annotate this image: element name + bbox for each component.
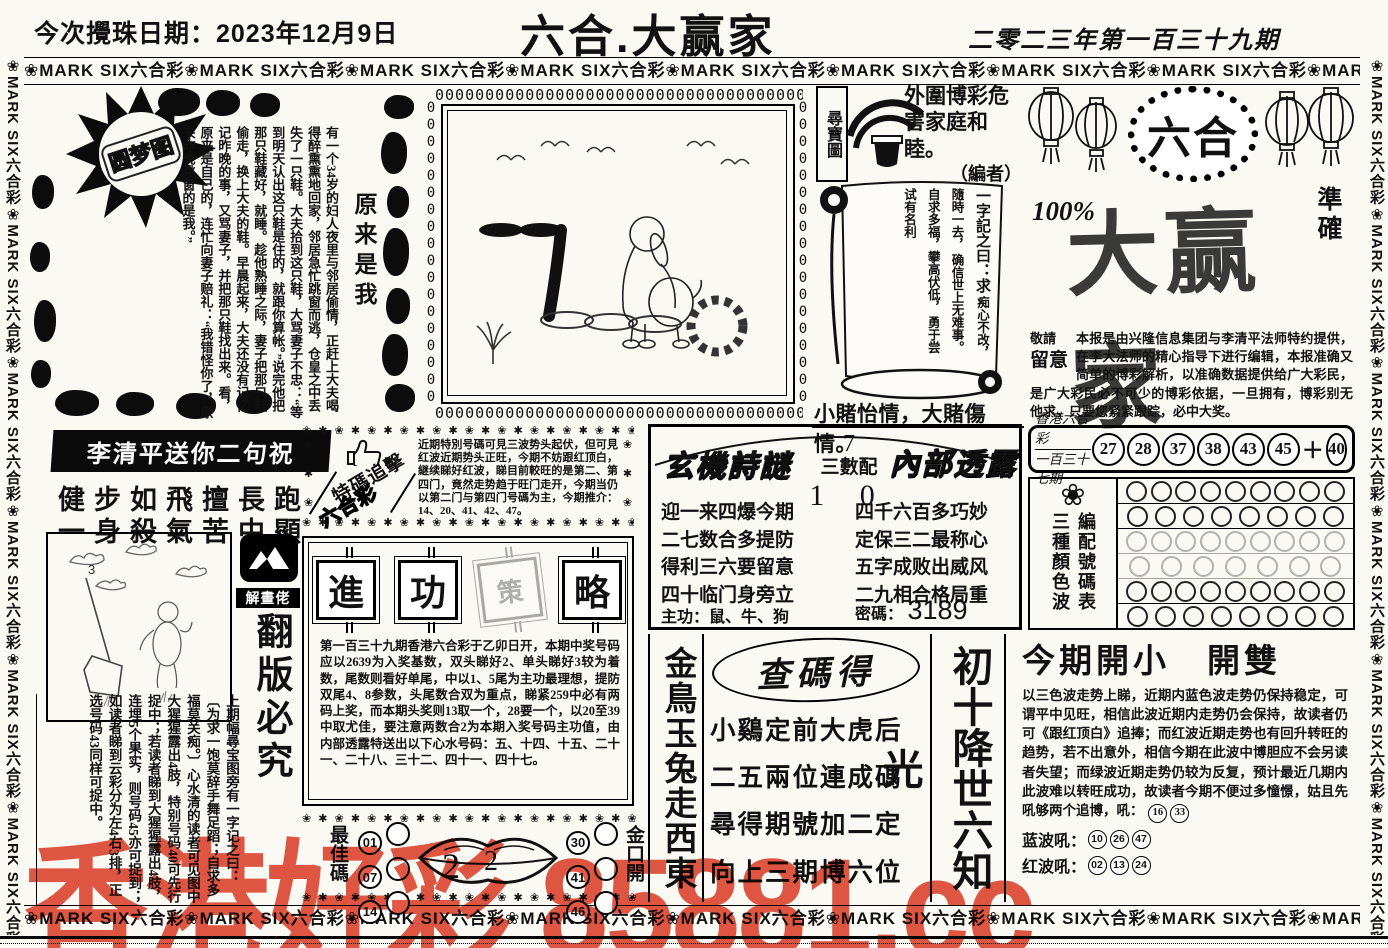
forecast-hou-numbers: 1633 xyxy=(1147,803,1191,818)
wave-table-row xyxy=(1118,554,1353,579)
right-poem-line: 四千六百多巧妙 xyxy=(855,499,1023,527)
wave-circle xyxy=(1200,531,1221,552)
ink-blob xyxy=(386,288,410,324)
wave-circle xyxy=(1225,556,1246,577)
strategy-tile: 略 xyxy=(562,560,622,620)
slogan-line-2: 害家庭和睦。 xyxy=(904,110,1022,163)
wave-circle xyxy=(1295,606,1316,627)
main-zodiac: 主功：鼠、牛、狗 xyxy=(661,603,789,627)
wave-circle xyxy=(1151,531,1172,552)
draw-date: 今次攪珠日期：2023年12月9日 xyxy=(34,14,398,50)
wave-circle xyxy=(1211,606,1232,627)
accurate-label: 準確 xyxy=(1310,186,1346,276)
wave-circle xyxy=(1175,531,1196,552)
results-extra-number: 40 xyxy=(1326,433,1347,466)
wave-circle xyxy=(1151,581,1172,602)
bead-border-left: 0000000000000000000 xyxy=(423,100,439,404)
results-lottery-name: 香港六合彩 xyxy=(1035,409,1091,449)
ink-blob xyxy=(381,132,407,174)
wave-circle xyxy=(1175,481,1196,502)
wave-circle xyxy=(1324,531,1345,552)
wave-circle xyxy=(1320,556,1341,577)
wave-circle xyxy=(1127,606,1148,627)
wave-table-row xyxy=(1118,604,1353,628)
wave-circle xyxy=(1299,531,1320,552)
circled-number: 37 xyxy=(1162,433,1195,466)
blue-wave-numbers: 102647 xyxy=(1086,829,1152,849)
ink-blob xyxy=(158,88,200,116)
mystic-poem-panel: 玄機詩謎 內部透露 7 三數配 1 0 迎一来四爆今期 二七数合多提防 得利三六… xyxy=(648,424,1022,630)
border-strip-top: ❀MARK SIX六合彩❀MARK SIX六合彩❀MARK SIX六合彩❀MAR… xyxy=(24,57,1360,85)
wave-circle xyxy=(1225,581,1246,602)
circled-number: 27 xyxy=(1092,433,1125,466)
circled-number: 47 xyxy=(1132,830,1151,849)
poem-header-left: 玄機詩謎 xyxy=(663,441,791,485)
wave-circle xyxy=(1267,606,1288,627)
ink-blob xyxy=(34,300,56,342)
page-title: 六合.大赢家 xyxy=(520,0,776,65)
circled-number: 10 xyxy=(1088,830,1107,849)
chama-title: 查碼得 xyxy=(755,643,877,696)
lanterns-left-icon xyxy=(1026,84,1126,188)
piracy-warning: 翻版必究 xyxy=(244,612,298,812)
red-watermark: 香港好彩 85881.cc xyxy=(24,794,1033,948)
ink-blob xyxy=(384,95,414,119)
wave-table-row xyxy=(1118,504,1353,529)
wave-table-row xyxy=(1118,479,1353,504)
wave-circle xyxy=(1155,606,1176,627)
forecast-body: 以三色波走势上睇，近期内蓝色波走势仍保持稳定，可谓平中见旺，相信此波近期内走势仍… xyxy=(1022,686,1348,823)
wave-circle xyxy=(1257,556,1278,577)
newspaper-page: 今次攪珠日期：2023年12月9日 六合.大赢家 二零二三年第一百三十九期 ❀M… xyxy=(0,0,1388,948)
wave-circle xyxy=(1239,506,1260,527)
ink-blob xyxy=(32,175,54,209)
ink-blob xyxy=(387,186,409,218)
diagonal-rule xyxy=(390,473,416,513)
wave-circle xyxy=(1250,531,1271,552)
wave-circle xyxy=(1129,556,1150,577)
wave-circle xyxy=(1183,606,1204,627)
circled-number: 45 xyxy=(1267,433,1300,466)
wave-circle xyxy=(1250,481,1271,502)
dog-scene-illustration xyxy=(449,112,783,392)
left-poem-line: 二七数合多提防 xyxy=(661,527,833,555)
strategy-panel: 進 功 策 略 第一百三十九期香港六合彩于乙卯日开，本期中奖号码应以2639为入… xyxy=(302,536,634,806)
wave-circle xyxy=(1126,531,1147,552)
circled-number: 13 xyxy=(1110,856,1129,875)
story-title: 原来是我 xyxy=(346,192,380,342)
wave-table-row xyxy=(1118,529,1353,554)
secret-code-label: 密碼： xyxy=(855,606,903,623)
wave-circle xyxy=(1289,556,1310,577)
wave-circle xyxy=(1324,481,1345,502)
story-body: 有一个34岁的妇人夜里与邻居偷情，正赶上大夫喝得醉熏熏地回家，邻居急忙跳窗而逃，… xyxy=(98,126,340,420)
wave-table-label: 三種顏色波編配號碼表 xyxy=(1047,512,1099,620)
results-box: 香港六合彩 一百三十七期 272837384345 ＋ 40 xyxy=(1028,425,1355,473)
wave-circle xyxy=(1211,506,1232,527)
scroll-line: 确信世上无难事。 xyxy=(950,254,964,354)
wave-circle xyxy=(1299,581,1320,602)
jiehua-label: 解畫佬 xyxy=(236,588,300,608)
ink-blob xyxy=(385,384,415,412)
forecast-title: 今期開小 開雙 xyxy=(1022,634,1358,682)
wave-circle xyxy=(1324,581,1345,602)
plus-sign: ＋ xyxy=(1302,433,1324,465)
forecast-panel: 今期開小 開雙 以三色波走势上睇，近期内蓝色波走势仍保持稳定，可谓平中见旺，相信… xyxy=(1008,632,1358,904)
strategy-body: 第一百三十九期香港六合彩于乙卯日开，本期中奖号码应以2639为入奖基数，双头睇好… xyxy=(320,638,620,768)
wave-circle xyxy=(1274,531,1295,552)
wave-circle xyxy=(1183,506,1204,527)
scroll-line: 自求多福，攀高伏低， xyxy=(926,188,940,313)
wave-circle xyxy=(1151,481,1172,502)
ink-blob xyxy=(250,93,280,117)
strategy-tile: 進 xyxy=(316,560,376,620)
poem-header-right: 內部透露 xyxy=(889,439,1017,483)
ink-blob xyxy=(31,360,51,388)
combo-label: 三數配 xyxy=(809,452,889,479)
notice-head-1: 敬請 xyxy=(1030,330,1076,348)
circled-number: 02 xyxy=(1088,856,1107,875)
wave-circle xyxy=(1295,506,1316,527)
strategy-tile-seal: 策 xyxy=(477,557,544,624)
forecast-body-text: 以三色波走势上睇，近期内蓝色波走势仍保持稳定，可谓平中见旺，相信此波近期内走势仍… xyxy=(1022,688,1348,818)
notice-head-2: 留意 xyxy=(1030,348,1076,375)
liuhe-logo: 六合 xyxy=(1128,86,1258,182)
wave-circle xyxy=(1126,481,1147,502)
wave-circle xyxy=(1193,556,1214,577)
wave-circle xyxy=(1225,481,1246,502)
wave-table-rows xyxy=(1118,479,1353,628)
wave-circle xyxy=(1323,506,1344,527)
ink-blob xyxy=(206,90,240,116)
issue-number: 二零二三年第一百三十九期 xyxy=(968,20,1280,55)
treasure-panel: 尋寶圖 外圍博彩危 害家庭和睦。 （編者） 一字記之曰：求 痴心不改，隨時一去，… xyxy=(812,76,1024,428)
bead-border-top: 00000000000000000000000000000000000000 xyxy=(435,86,803,104)
wave-table-panel: ❀ 三種顏色波編配號碼表 xyxy=(1028,477,1355,630)
right-poem-line: 定保三二最称心 xyxy=(855,527,1023,555)
bead-border-bottom: 00000000000000000000000000000000000000 xyxy=(435,404,803,422)
wave-circle xyxy=(1323,606,1344,627)
notice-body: 本报是由兴隆信息集团与李清平法师特约提供，在李大法师的精心指导下进行编辑，本报准… xyxy=(1030,331,1353,419)
wave-circle xyxy=(1161,556,1182,577)
ink-blob xyxy=(30,242,50,272)
wave-circle xyxy=(1126,581,1147,602)
border-strip-right: ❀MARK SIX六合彩❀MARK SIX六合彩❀MARK SIX六合彩❀MAR… xyxy=(1364,57,1387,935)
monkey-illustration: 3 xyxy=(48,534,230,720)
circled-number: 28 xyxy=(1127,433,1160,466)
wave-circle xyxy=(1299,481,1320,502)
mountain-icon xyxy=(240,534,298,582)
left-poem-line: 迎一来四爆今期 xyxy=(661,499,833,527)
liuhe-logo-text: 六合 xyxy=(1147,102,1239,166)
wave-circle xyxy=(1225,531,1246,552)
circled-number: 38 xyxy=(1197,433,1230,466)
wave-circle xyxy=(1155,506,1176,527)
right-poem-line: 五字成败出威风 xyxy=(855,554,1023,582)
border-strip-left: ❀MARK SIX六合彩❀MARK SIX六合彩❀MARK SIX六合彩❀MAR… xyxy=(0,57,23,935)
wave-circle xyxy=(1200,481,1221,502)
red-wave-numbers: 021324 xyxy=(1086,855,1152,875)
ink-blob xyxy=(382,334,408,376)
ink-blob xyxy=(55,390,99,416)
circled-number: 33 xyxy=(1170,804,1189,823)
wave-circle xyxy=(1274,581,1295,602)
lanterns-right-icon xyxy=(1262,84,1362,188)
liqingping-banner: 李清平送你二句祝 xyxy=(51,430,332,472)
bead-border-right: 0000000000000000000 xyxy=(795,100,811,404)
wave-circle xyxy=(1274,481,1295,502)
strategy-tile: 功 xyxy=(398,560,458,620)
circled-number: 26 xyxy=(1110,830,1129,849)
circled-number: 43 xyxy=(1232,433,1265,466)
scroll-title: 一字記之曰：求 xyxy=(974,188,990,293)
left-poem-line: 得利三六要留意 xyxy=(661,554,833,582)
flower-icon: ❀ xyxy=(1060,479,1085,512)
wave-table-row xyxy=(1118,579,1353,604)
wave-circle xyxy=(1267,506,1288,527)
wave-circle xyxy=(1200,581,1221,602)
wave-circle xyxy=(1127,506,1148,527)
special-number-panel: ❀ ✱ ❀ ✱ ❀ ✱ ❀ ✱ ❀ ✱ ❀ ✱ ❀ ✱ ❀ ✱ ❀ ✱ ❀ ✱ … xyxy=(302,424,634,530)
ink-blob xyxy=(383,228,409,276)
picture-number-3: 3 xyxy=(88,562,95,577)
slogan-line-1: 外圍博彩危 xyxy=(904,84,1022,110)
dog-picture-frame: 00000000000000000000000000000000000000 0… xyxy=(425,88,810,420)
tema-body: 近期特別号碼可見三波势头起伏，但可見红波近期势头正旺，今期不妨跟红顶白，継续睇好… xyxy=(418,439,618,518)
results-numbers: 272837384345 xyxy=(1091,433,1301,466)
wave-circle xyxy=(1175,581,1196,602)
wave-circle xyxy=(1250,581,1271,602)
secret-code-value: 3189 xyxy=(907,595,967,625)
circled-number: 24 xyxy=(1132,856,1151,875)
circled-number: 16 xyxy=(1148,804,1167,823)
banner-title: 李清平送你二句祝 xyxy=(86,434,296,469)
wave-circle xyxy=(1239,606,1260,627)
flower-border-left: ❀ ✱ ❀ ✱ ❀ ✱ ❀ ✱ xyxy=(302,438,315,516)
flower-border-right: ❀ ✱ ❀ ✱ ❀ ✱ ❀ ✱ xyxy=(621,438,634,516)
